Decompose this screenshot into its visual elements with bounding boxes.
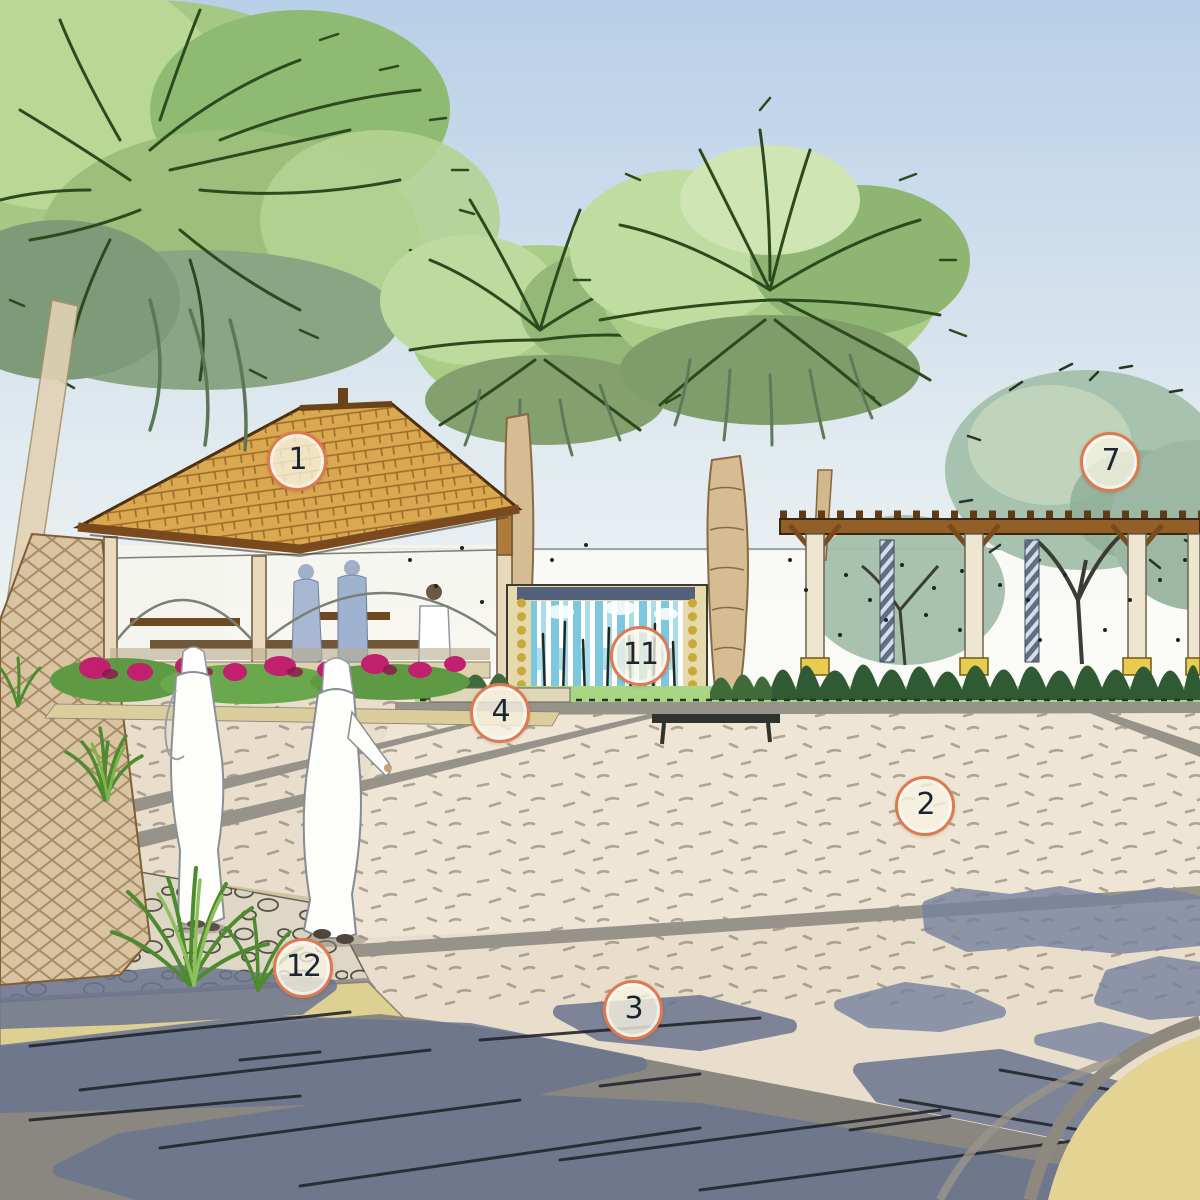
scene-illustration (0, 0, 1200, 1200)
water-feature-top-rail (517, 587, 695, 600)
palm-trunk-center (708, 456, 749, 700)
concept-rendering: 1 7 11 4 2 12 3 (0, 0, 1200, 1200)
water-feature-wall (507, 585, 707, 700)
